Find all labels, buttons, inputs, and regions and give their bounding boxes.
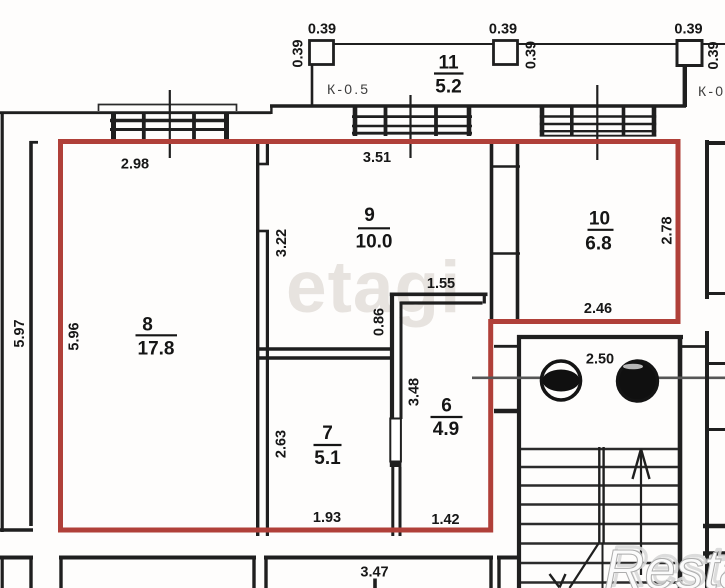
svg-text:11: 11 <box>438 53 459 74</box>
svg-text:К-0.5: К-0.5 <box>698 83 725 99</box>
svg-text:2.63: 2.63 <box>274 430 290 458</box>
svg-text:2.78: 2.78 <box>660 216 676 244</box>
svg-text:Restate: Restate <box>604 538 725 588</box>
svg-text:0.39: 0.39 <box>308 22 336 38</box>
svg-text:5.97: 5.97 <box>12 319 28 347</box>
svg-text:2.46: 2.46 <box>584 301 612 317</box>
svg-text:7: 7 <box>322 423 333 444</box>
svg-text:17.8: 17.8 <box>138 339 175 360</box>
svg-text:3.22: 3.22 <box>274 229 290 257</box>
svg-text:3.47: 3.47 <box>360 565 388 581</box>
svg-text:9: 9 <box>364 205 375 226</box>
svg-text:0.39: 0.39 <box>291 39 307 67</box>
svg-text:6: 6 <box>441 396 452 417</box>
svg-text:0.39: 0.39 <box>674 22 702 38</box>
svg-text:3.51: 3.51 <box>363 150 391 166</box>
svg-text:8: 8 <box>142 315 153 336</box>
svg-text:10: 10 <box>589 209 610 230</box>
svg-text:6.8: 6.8 <box>585 234 611 255</box>
svg-text:0.39: 0.39 <box>706 41 722 69</box>
svg-text:5.1: 5.1 <box>314 448 341 469</box>
svg-text:К-0.5: К-0.5 <box>327 81 370 97</box>
svg-text:1.42: 1.42 <box>431 512 459 528</box>
svg-text:0.39: 0.39 <box>489 22 517 38</box>
svg-text:0.86: 0.86 <box>372 308 388 336</box>
svg-text:2.98: 2.98 <box>121 157 149 173</box>
svg-text:5.96: 5.96 <box>67 322 83 350</box>
svg-text:5.2: 5.2 <box>435 77 461 98</box>
svg-text:2.50: 2.50 <box>586 352 614 368</box>
svg-text:10.0: 10.0 <box>356 232 393 253</box>
svg-text:4.9: 4.9 <box>433 419 459 440</box>
svg-text:3.48: 3.48 <box>407 378 423 406</box>
svg-text:0.39: 0.39 <box>524 41 540 69</box>
svg-text:1.93: 1.93 <box>313 510 341 526</box>
svg-text:1.55: 1.55 <box>427 276 455 292</box>
